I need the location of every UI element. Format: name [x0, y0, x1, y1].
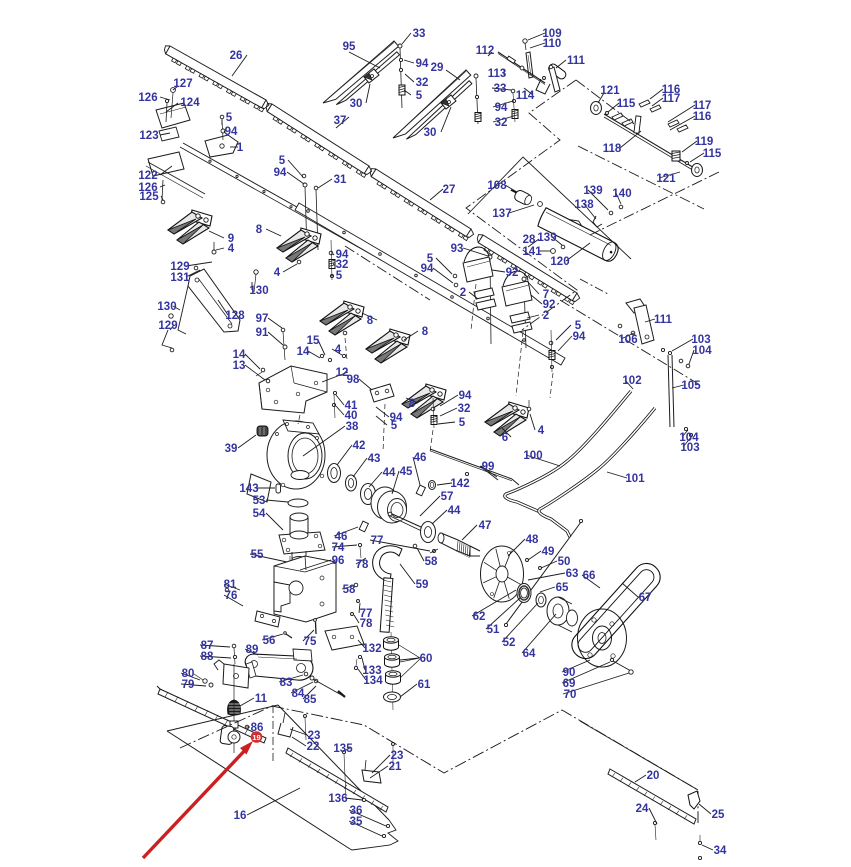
svg-text:20: 20: [647, 770, 660, 782]
svg-text:30: 30: [424, 127, 437, 139]
svg-text:115: 115: [703, 148, 722, 160]
svg-text:111: 111: [567, 55, 586, 67]
svg-text:122: 122: [138, 170, 157, 182]
svg-text:24: 24: [636, 803, 649, 815]
svg-text:21: 21: [389, 761, 402, 773]
svg-text:35: 35: [350, 816, 363, 828]
svg-text:8: 8: [409, 398, 416, 410]
svg-text:94: 94: [421, 263, 434, 275]
svg-text:93: 93: [451, 243, 464, 255]
svg-text:78: 78: [360, 618, 373, 630]
svg-text:58: 58: [343, 584, 356, 596]
svg-text:76: 76: [225, 590, 238, 602]
svg-text:55: 55: [251, 549, 264, 561]
svg-text:51: 51: [487, 624, 500, 636]
svg-text:11: 11: [255, 693, 268, 705]
svg-text:134: 134: [363, 675, 383, 687]
svg-text:6: 6: [502, 432, 508, 444]
svg-text:5: 5: [391, 420, 398, 432]
svg-text:25: 25: [712, 809, 725, 821]
svg-text:130: 130: [249, 285, 268, 297]
svg-text:47: 47: [479, 520, 492, 532]
svg-text:27: 27: [443, 184, 456, 196]
svg-text:138: 138: [574, 199, 594, 211]
svg-text:50: 50: [558, 556, 571, 568]
svg-text:33: 33: [494, 83, 507, 95]
svg-text:53: 53: [253, 495, 266, 507]
svg-text:91: 91: [256, 327, 269, 339]
svg-text:63: 63: [566, 568, 579, 580]
svg-text:39: 39: [225, 443, 238, 455]
svg-text:96: 96: [332, 555, 345, 567]
svg-text:100: 100: [523, 450, 542, 462]
svg-text:16: 16: [234, 810, 247, 822]
svg-text:61: 61: [418, 679, 431, 691]
svg-text:8: 8: [422, 326, 429, 338]
svg-text:64: 64: [523, 648, 536, 660]
svg-text:108: 108: [487, 180, 507, 192]
svg-text:88: 88: [201, 651, 214, 663]
svg-text:112: 112: [476, 45, 495, 57]
svg-text:29: 29: [431, 62, 444, 74]
svg-text:19: 19: [252, 733, 260, 742]
svg-text:1: 1: [237, 142, 244, 154]
svg-text:54: 54: [253, 508, 266, 520]
svg-text:44: 44: [448, 505, 461, 517]
svg-text:141: 141: [522, 246, 542, 258]
svg-text:4: 4: [538, 425, 545, 437]
svg-text:37: 37: [334, 115, 347, 127]
svg-text:78: 78: [356, 559, 369, 571]
svg-text:101: 101: [625, 473, 645, 485]
svg-text:94: 94: [459, 390, 472, 402]
svg-text:97: 97: [256, 313, 269, 325]
svg-text:48: 48: [526, 534, 539, 546]
svg-text:116: 116: [693, 111, 712, 123]
svg-text:124: 124: [180, 97, 200, 109]
svg-text:130: 130: [157, 301, 176, 313]
svg-text:120: 120: [550, 256, 569, 268]
svg-text:94: 94: [573, 331, 586, 343]
svg-text:111: 111: [654, 314, 673, 326]
svg-text:94: 94: [495, 102, 508, 114]
svg-text:5: 5: [279, 155, 286, 167]
svg-text:5: 5: [459, 417, 466, 429]
svg-text:42: 42: [353, 440, 366, 452]
svg-text:49: 49: [542, 546, 555, 558]
svg-text:74: 74: [332, 542, 345, 554]
svg-text:56: 56: [263, 635, 276, 647]
svg-text:34: 34: [714, 845, 727, 857]
svg-text:5: 5: [226, 112, 233, 124]
svg-text:33: 33: [413, 28, 426, 40]
svg-text:132: 132: [362, 643, 381, 655]
svg-text:4: 4: [335, 344, 342, 356]
svg-text:131: 131: [170, 272, 190, 284]
svg-text:66: 66: [583, 570, 596, 582]
svg-text:123: 123: [139, 130, 158, 142]
svg-text:22: 22: [307, 741, 320, 753]
svg-text:45: 45: [400, 466, 413, 478]
svg-text:104: 104: [692, 345, 712, 357]
svg-text:92: 92: [506, 267, 519, 279]
svg-text:67: 67: [639, 592, 652, 604]
svg-text:139: 139: [537, 232, 556, 244]
svg-text:83: 83: [280, 677, 293, 689]
svg-text:94: 94: [416, 58, 429, 70]
svg-text:14: 14: [297, 346, 310, 358]
svg-text:95: 95: [343, 41, 356, 53]
svg-text:57: 57: [441, 491, 454, 503]
svg-text:52: 52: [503, 637, 516, 649]
svg-text:118: 118: [603, 143, 622, 155]
svg-text:70: 70: [564, 689, 577, 701]
svg-text:4: 4: [274, 267, 281, 279]
svg-text:62: 62: [473, 611, 486, 623]
svg-text:115: 115: [617, 98, 636, 110]
svg-text:85: 85: [304, 694, 317, 706]
svg-text:125: 125: [139, 191, 159, 203]
svg-text:137: 137: [492, 208, 511, 220]
svg-text:103: 103: [680, 442, 699, 454]
svg-text:30: 30: [350, 98, 363, 110]
svg-text:126: 126: [138, 92, 157, 104]
svg-text:5: 5: [416, 90, 423, 102]
svg-text:98: 98: [347, 374, 360, 386]
svg-text:105: 105: [681, 380, 701, 392]
svg-text:106: 106: [618, 334, 637, 346]
svg-text:128: 128: [225, 310, 245, 322]
svg-text:129: 129: [158, 320, 177, 332]
svg-text:28: 28: [523, 234, 536, 246]
svg-text:135: 135: [333, 743, 353, 755]
svg-text:110: 110: [543, 38, 562, 50]
svg-text:60: 60: [420, 653, 433, 665]
svg-text:32: 32: [416, 77, 429, 89]
svg-text:77: 77: [371, 535, 384, 547]
svg-text:26: 26: [230, 50, 243, 62]
svg-text:117: 117: [662, 93, 681, 105]
svg-text:102: 102: [622, 375, 641, 387]
svg-text:65: 65: [556, 582, 569, 594]
svg-text:43: 43: [368, 453, 381, 465]
svg-text:44: 44: [383, 467, 396, 479]
svg-text:140: 140: [612, 188, 631, 200]
svg-text:13: 13: [233, 360, 246, 372]
svg-text:113: 113: [488, 68, 507, 80]
svg-text:38: 38: [346, 421, 359, 433]
svg-text:89: 89: [246, 644, 259, 656]
svg-text:121: 121: [656, 173, 676, 185]
svg-text:94: 94: [274, 167, 287, 179]
svg-text:2: 2: [543, 310, 549, 322]
svg-text:127: 127: [173, 78, 192, 90]
svg-text:75: 75: [304, 636, 317, 648]
svg-text:58: 58: [425, 556, 438, 568]
svg-text:79: 79: [182, 679, 195, 691]
svg-text:59: 59: [416, 579, 429, 591]
svg-text:99: 99: [482, 461, 495, 473]
svg-text:139: 139: [583, 185, 602, 197]
svg-text:8: 8: [367, 315, 374, 327]
svg-text:32: 32: [458, 403, 471, 415]
svg-text:31: 31: [334, 174, 347, 186]
svg-text:114: 114: [516, 90, 535, 102]
svg-text:143: 143: [239, 483, 258, 495]
svg-text:2: 2: [460, 287, 466, 299]
svg-text:121: 121: [600, 85, 620, 97]
svg-text:119: 119: [695, 136, 714, 148]
svg-text:46: 46: [414, 452, 427, 464]
svg-text:5: 5: [336, 270, 343, 282]
svg-text:32: 32: [495, 117, 508, 129]
svg-text:142: 142: [450, 478, 469, 490]
svg-text:94: 94: [225, 126, 238, 138]
svg-text:8: 8: [256, 224, 263, 236]
svg-text:136: 136: [328, 793, 347, 805]
svg-text:4: 4: [228, 243, 235, 255]
